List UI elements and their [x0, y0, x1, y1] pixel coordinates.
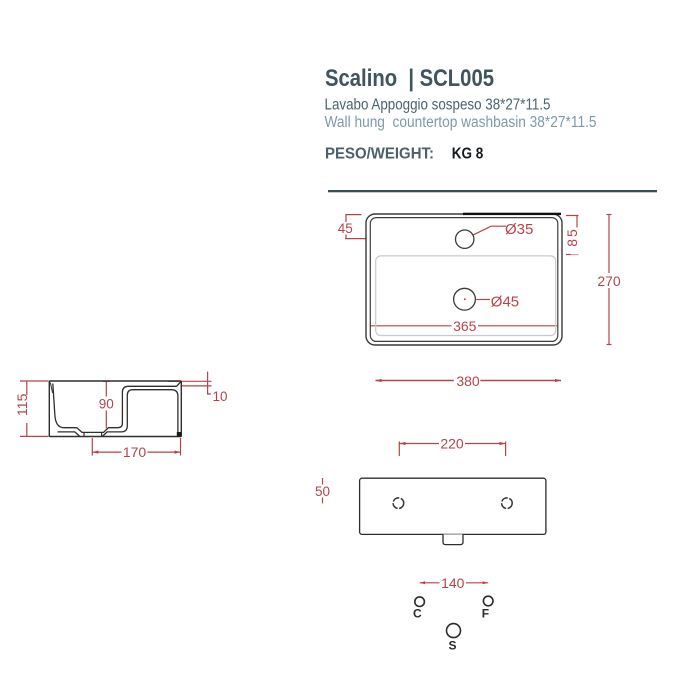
svg-text:45: 45 [338, 221, 353, 236]
svg-text:C: C [413, 606, 422, 620]
svg-text:380: 380 [456, 373, 480, 389]
svg-text:115: 115 [14, 393, 30, 416]
svg-text:50: 50 [315, 484, 330, 499]
svg-text:PESO/WEIGHT:: PESO/WEIGHT: [325, 146, 434, 163]
svg-text:10: 10 [213, 389, 228, 404]
svg-text:Lavabo Appoggio sospeso 38*27*: Lavabo Appoggio sospeso 38*27*11.5 [325, 97, 551, 114]
svg-text:170: 170 [123, 444, 147, 460]
svg-text:Scalino | SCL005: Scalino | SCL005 [325, 65, 494, 92]
svg-text:365: 365 [453, 318, 477, 334]
svg-text:Wall hung countertop washbasi: Wall hung countertop washbasin 38*27*11.… [325, 114, 597, 131]
svg-text:Ø35: Ø35 [505, 221, 533, 238]
svg-text:90: 90 [99, 396, 114, 411]
svg-text:270: 270 [597, 273, 621, 289]
svg-text:85: 85 [564, 227, 580, 247]
svg-text:140: 140 [441, 575, 465, 591]
svg-text:220: 220 [440, 435, 464, 451]
svg-text:F: F [482, 606, 489, 620]
svg-text:S: S [449, 639, 457, 653]
svg-text:Ø45: Ø45 [491, 293, 519, 310]
svg-text:KG 8: KG 8 [452, 146, 484, 163]
